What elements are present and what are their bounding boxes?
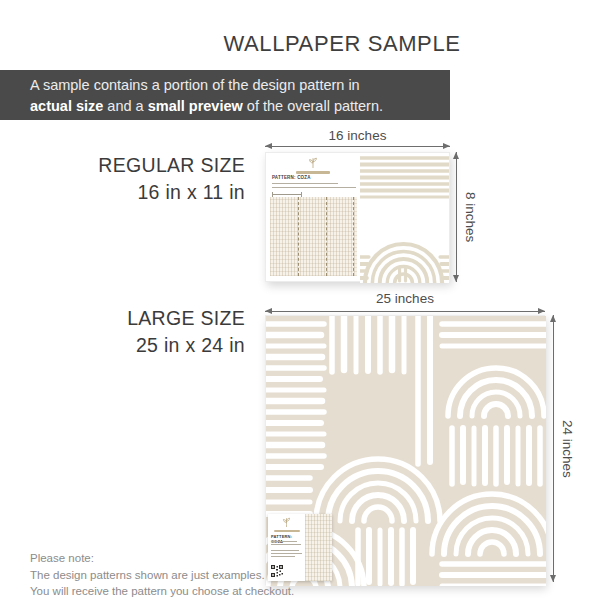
panel-divider-dashed-line: [353, 197, 354, 276]
regular-sample-pattern-graphic: [360, 153, 449, 283]
regular-sample-sheet: PATTERN: COZA: [265, 152, 450, 282]
large-width-dimension-arrow: [265, 311, 545, 312]
fine-print-line: [272, 183, 338, 184]
footer-note-line-1: Please note:: [30, 550, 294, 567]
panel-divider-dashed-line: [298, 197, 299, 276]
banner-bold-actual-size: actual size: [30, 98, 103, 114]
regular-size-name: REGULAR SIZE: [0, 152, 245, 179]
footer-note: Please note: The design patterns shown a…: [30, 550, 294, 600]
regular-height-dimension-arrow: [456, 152, 457, 282]
large-height-dimension-label: 24 inches: [560, 315, 575, 582]
brand-sprig-icon: [282, 517, 291, 528]
pattern-preview-swatch: [270, 197, 357, 276]
regular-size-label: REGULAR SIZE 16 in x 11 in: [0, 152, 245, 206]
footer-note-line-2: The design patterns shown are just examp…: [30, 567, 294, 584]
large-card-pattern-title: PATTERN: COZA: [271, 534, 305, 544]
regular-height-dimension-label: 8 inches: [463, 152, 478, 282]
regular-width-dimension-arrow: [265, 146, 450, 147]
large-width-dimension-label: 25 inches: [265, 291, 545, 306]
large-size-name: LARGE SIZE: [0, 305, 245, 332]
pattern-preview-swatch: [305, 514, 332, 581]
banner-line-2-mid: and a: [103, 98, 147, 114]
regular-sample-label-area: PATTERN: COZA: [266, 153, 360, 281]
banner-line-1: A sample contains a portion of the desig…: [30, 75, 450, 96]
fine-print-line: [271, 544, 301, 545]
brand-logo: [268, 517, 305, 532]
large-size-dimensions: 25 in x 24 in: [0, 332, 245, 359]
fine-print-line: [272, 187, 356, 188]
large-size-label: LARGE SIZE 25 in x 24 in: [0, 305, 245, 359]
large-height-dimension-arrow: [553, 315, 554, 582]
banner-line-2: actual size and a small preview of the o…: [30, 96, 450, 117]
brand-logo: [266, 157, 360, 174]
fine-print-line: [271, 541, 297, 542]
regular-width-dimension-label: 16 inches: [265, 128, 450, 143]
brand-sprig-icon: [308, 157, 318, 169]
brand-name-text-placeholder: [274, 530, 300, 532]
large-sample-sheet: PATTERN: COZA: [265, 315, 545, 585]
regular-size-dimensions: 16 in x 11 in: [0, 179, 245, 206]
wallpaper-sample-infographic: WALLPAPER SAMPLE A sample contains a por…: [0, 0, 600, 600]
page-title: WALLPAPER SAMPLE: [92, 31, 592, 57]
info-banner: A sample contains a portion of the desig…: [0, 70, 450, 120]
regular-card-pattern-title: PATTERN: COZA: [272, 175, 311, 180]
repeat-ruler-graphic: [272, 194, 302, 195]
banner-bold-small-preview: small preview: [148, 98, 243, 114]
brand-name-text-placeholder: [296, 171, 330, 174]
footer-note-line-3: You will receive the pattern you choose …: [30, 583, 294, 600]
panel-divider-dashed-line: [326, 197, 327, 276]
banner-line-2-tail: of the overall pattern.: [243, 98, 383, 114]
